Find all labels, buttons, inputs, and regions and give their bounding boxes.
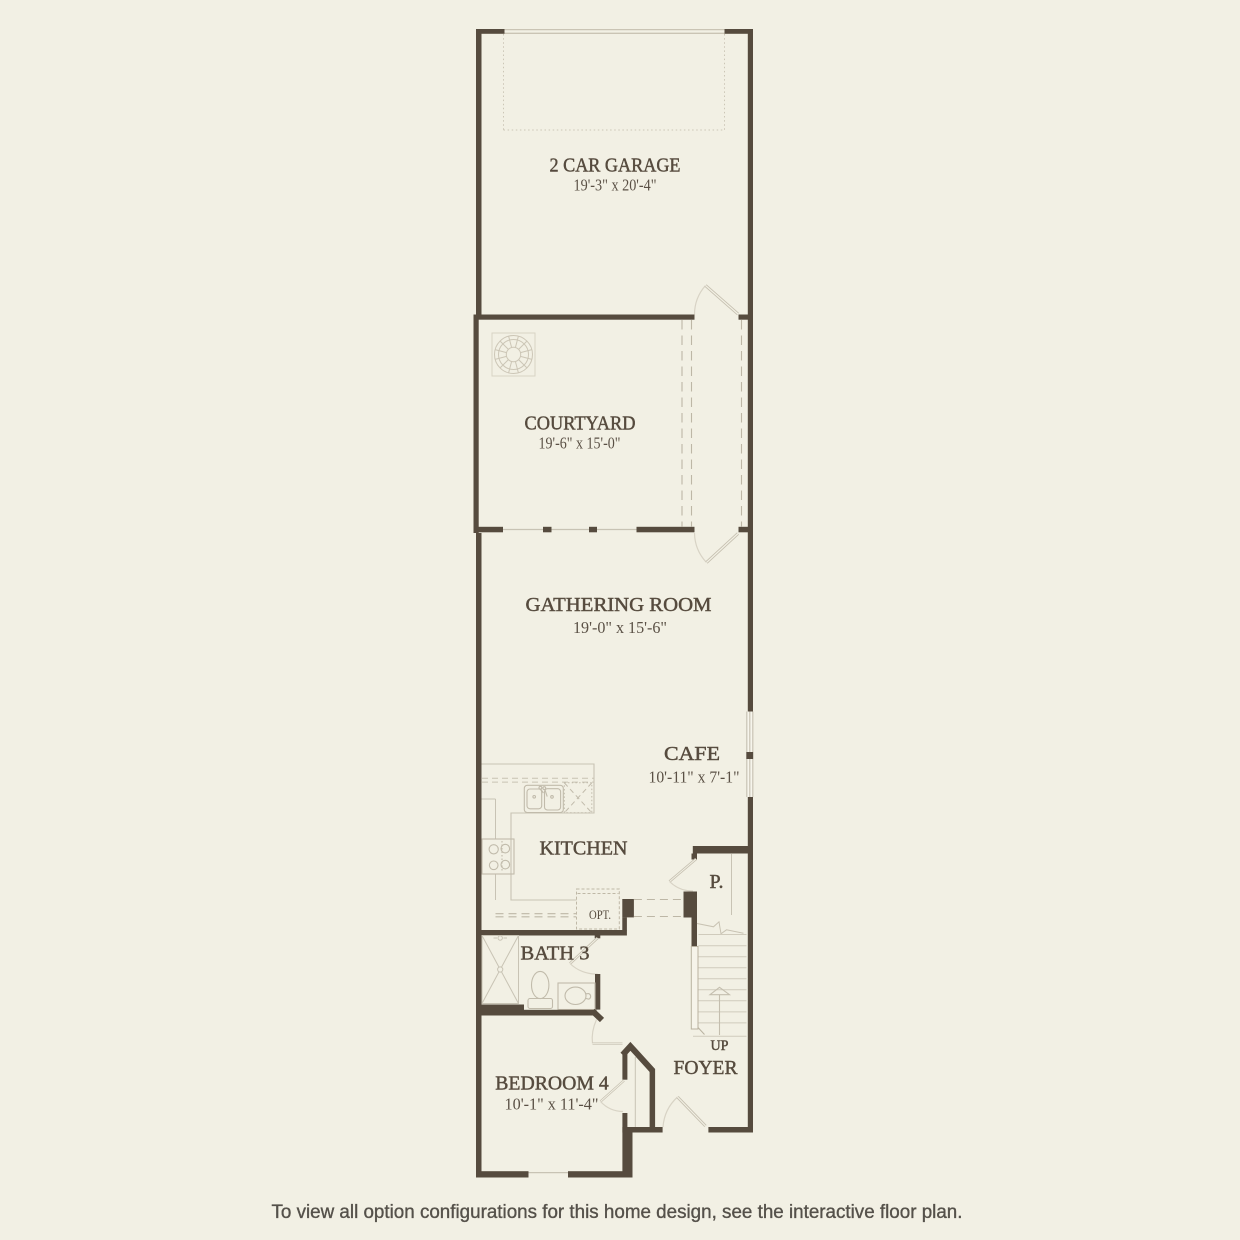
svg-text:OPT.: OPT. (589, 908, 611, 922)
svg-text:GATHERING ROOM: GATHERING ROOM (526, 594, 712, 616)
svg-text:2 CAR GARAGE: 2 CAR GARAGE (550, 155, 681, 177)
svg-text:10'-11" x 7'-1": 10'-11" x 7'-1" (649, 768, 740, 787)
svg-text:COURTYARD: COURTYARD (525, 413, 636, 435)
svg-text:UP: UP (711, 1038, 729, 1054)
svg-text:KITCHEN: KITCHEN (540, 838, 628, 860)
svg-text:BATH 3: BATH 3 (521, 943, 590, 965)
svg-text:10'-1" x 11'-4": 10'-1" x 11'-4" (505, 1095, 599, 1114)
svg-text:BEDROOM 4: BEDROOM 4 (495, 1073, 609, 1095)
svg-text:P.: P. (710, 871, 724, 893)
svg-text:FOYER: FOYER (674, 1057, 739, 1079)
svg-text:19'-3" x 20'-4": 19'-3" x 20'-4" (574, 176, 657, 195)
svg-text:19'-0" x 15'-6": 19'-0" x 15'-6" (573, 618, 667, 637)
svg-text:CAFE: CAFE (664, 743, 720, 765)
svg-text:19'-6" x 15'-0": 19'-6" x 15'-0" (539, 434, 621, 453)
svg-text:To view all option configurati: To view all option configurations for th… (272, 1202, 963, 1223)
